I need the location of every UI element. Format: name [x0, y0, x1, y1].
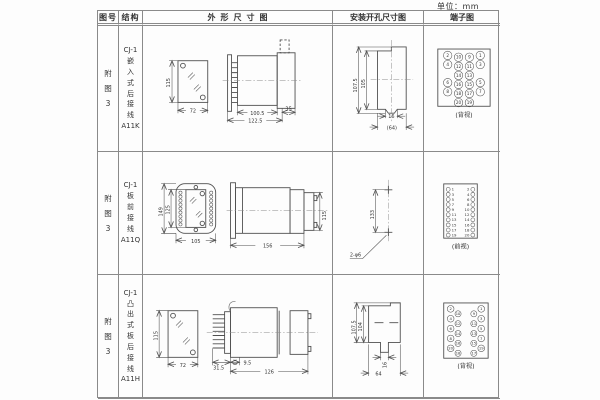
- cell-outline-a11q: 149 125 105: [143, 152, 333, 275]
- terminal-circle: [471, 228, 475, 232]
- dim-label: 72: [190, 108, 196, 114]
- dashed-handle: [280, 40, 289, 53]
- terminal-number: 14: [456, 73, 462, 78]
- header-install: 安装开孔尺寸图: [333, 11, 424, 26]
- terminal-fins: [232, 63, 238, 103]
- dim-label: 125: [166, 205, 172, 214]
- terminal-circle: [446, 203, 450, 207]
- terminal-number: 16: [456, 342, 461, 346]
- terminal-circle: [446, 233, 450, 237]
- terminal-number: 20: [465, 232, 470, 237]
- dim-label: 149: [159, 207, 165, 216]
- structure-a11h: CJ-1 凸 出 式 板 后 接 线 A11H: [119, 275, 143, 399]
- view-label: (背视): [455, 111, 472, 119]
- header-structure: 结构: [119, 11, 143, 26]
- fig-no-a11h: 附 图 3: [98, 275, 119, 399]
- terminal-number: 10: [456, 55, 462, 60]
- dim-label: 100.5: [250, 111, 264, 117]
- terminal-diagram-a11h: 2104126148162018193115137151917 (背视): [424, 275, 499, 398]
- cell-outline-a11k: 115 72 100.5: [143, 26, 333, 152]
- terminal-number: 9: [473, 312, 475, 316]
- terminal-number: 1: [480, 307, 483, 311]
- terminal-number: 4: [446, 62, 449, 67]
- dim-label: 16: [388, 114, 394, 120]
- terminal-number: 6: [449, 327, 452, 331]
- terminal-number: 19: [479, 347, 484, 351]
- terminal-number: 16: [456, 82, 462, 87]
- dim-label: 107.5: [351, 320, 357, 334]
- a11k-front-view: 115 72: [166, 61, 208, 115]
- header-fig-no: 图号: [98, 11, 119, 26]
- dim-label: 133: [370, 210, 376, 219]
- dim-label: 31.5: [213, 366, 224, 372]
- terminal-number: 14: [456, 332, 461, 336]
- terminal-circle: [446, 218, 450, 222]
- terminal-grid-a11k: 2109141211314136161558181772019: [443, 51, 484, 107]
- header-terminal: 端子图: [424, 11, 500, 26]
- outline-drawing-a11k: 115 72 100.5: [143, 26, 332, 151]
- a11h-front-view: 115 72: [154, 311, 198, 369]
- cell-install-a11q: 133 2-φ6: [333, 152, 424, 275]
- terminal-circle: [446, 192, 450, 196]
- dim-label: 16: [382, 362, 388, 368]
- terminal-number: 12: [456, 322, 461, 326]
- terminal-circle: [471, 218, 475, 222]
- terminal-number: 20: [456, 100, 462, 105]
- terminal-number: 8: [446, 89, 449, 94]
- view-label: (前视): [452, 243, 469, 251]
- glass-hatch: [190, 197, 202, 217]
- terminal-circle: [471, 233, 475, 237]
- glass-hatch: [188, 73, 201, 92]
- dim-label: 9.5: [243, 360, 251, 366]
- terminal-number: 9: [468, 55, 471, 60]
- terminal-number: 5: [479, 80, 482, 85]
- hole-cross: [384, 186, 392, 194]
- structure-a11q: CJ-1 板 前 接 线 A11Q: [119, 152, 143, 275]
- terminal-circle: [446, 213, 450, 217]
- terminal-circle: [471, 198, 475, 202]
- terminal-number: 18: [456, 352, 461, 356]
- dim-label: 105: [361, 79, 367, 88]
- a11q-holes: 133 2-φ6: [350, 180, 393, 259]
- structure-a11k: CJ-1 嵌 入 式 后 接 线 A11K: [119, 26, 143, 152]
- dim-label: 126: [265, 370, 274, 376]
- terminal-number: 20: [448, 347, 453, 351]
- terminal-number: 7: [479, 89, 482, 94]
- terminal-number: 15: [472, 342, 477, 346]
- dim-label: 64: [375, 372, 381, 378]
- terminal-circle: [446, 187, 450, 191]
- terminal-circle: [471, 223, 475, 227]
- a11h-side-view: 31.5 9.5 126: [207, 302, 318, 376]
- terminal-number: 18: [456, 91, 462, 96]
- terminal-number: 11: [472, 322, 477, 326]
- hole-spec-label: 2-φ6: [350, 253, 361, 259]
- cell-terminal-a11q: 1357911131517192468101214161820 (前视): [424, 152, 500, 275]
- terminal-diagram-a11k: 2109141211314136161558181772019 (背视): [424, 26, 499, 151]
- terminal-circle: [471, 187, 475, 191]
- terminal-circle: [446, 223, 450, 227]
- terminal-circle: [471, 192, 475, 196]
- outline-drawing-a11h: 115 72 3: [143, 275, 332, 398]
- terminal-number: 3: [480, 317, 483, 321]
- terminal-number: 17: [467, 91, 473, 96]
- cell-terminal-a11k: 2109141211314136161558181772019 (背视): [424, 26, 500, 152]
- header-outline: 外形尺寸图: [143, 11, 333, 26]
- terminal-circle: [471, 203, 475, 207]
- terminal-number: 15: [467, 82, 473, 87]
- terminal-screw-columns: [179, 191, 213, 226]
- seal-hook: [229, 302, 236, 311]
- dim-label: 104: [358, 322, 364, 331]
- terminal-grid-a11h: 2104126148162018193115137151917: [447, 306, 484, 357]
- terminal-number: 6: [446, 80, 449, 85]
- terminal-circle: [446, 198, 450, 202]
- terminal-number: 13: [472, 332, 477, 336]
- terminal-number: 1: [479, 53, 482, 58]
- terminal-number: 19: [467, 100, 473, 105]
- document-page: 单位：mm 图号 结构 外形尺寸图 安装开孔尺寸图 端子图 附 图 3 CJ-1…: [0, 0, 600, 400]
- install-drawing-a11q: 133 2-φ6: [333, 152, 423, 274]
- install-drawing-a11k: 107.5 105 16 (64): [333, 26, 423, 151]
- a11q-front-view: 149 125 105: [159, 184, 216, 245]
- terminal-circle: [471, 208, 475, 212]
- terminal-number: 19: [452, 232, 457, 237]
- dim-label: 156: [263, 244, 272, 250]
- cell-outline-a11h: 115 72 3: [143, 275, 333, 399]
- dim-label: 122.5: [248, 119, 262, 125]
- dim-label: 72: [180, 363, 186, 369]
- outline-drawing-a11q: 149 125 105: [143, 152, 332, 274]
- terminal-grid-a11q: 1357911131517192468101214161820: [446, 187, 475, 238]
- dim-label: 115: [154, 331, 160, 340]
- terminal-number: 11: [467, 64, 473, 69]
- terminal-number: 8: [449, 337, 452, 341]
- terminal-number: 4: [449, 317, 452, 321]
- a11h-cutout: 107.5 104 16 64: [351, 303, 408, 378]
- a11k-cutout: 107.5 105 16 (64): [353, 40, 414, 132]
- terminal-number: 3: [479, 62, 482, 67]
- terminal-number: 7: [480, 337, 483, 341]
- spec-table: 图号 结构 外形尺寸图 安装开孔尺寸图 端子图 附 图 3 CJ-1 嵌 入 式…: [97, 10, 499, 398]
- terminal-number: 2: [449, 307, 452, 311]
- dim-label: 35: [285, 106, 291, 112]
- cell-install-a11k: 107.5 105 16 (64): [333, 26, 424, 152]
- fig-no-a11q: 附 图 3: [98, 152, 119, 275]
- glass-hatch: [176, 321, 190, 345]
- dim-label: (64): [387, 126, 397, 132]
- terminal-diagram-a11q: 1357911131517192468101214161820 (前视): [424, 152, 499, 274]
- terminal-box: [444, 184, 478, 238]
- terminal-number: 12: [456, 64, 462, 69]
- hole-cross: [384, 228, 392, 236]
- cell-install-a11h: 107.5 104 16 64: [333, 275, 424, 399]
- fig-no-a11k: 附 图 3: [98, 26, 119, 152]
- view-label: (背视): [457, 362, 474, 370]
- terminal-number: 17: [472, 352, 477, 356]
- terminal-number: 10: [456, 312, 461, 316]
- terminal-circle: [446, 208, 450, 212]
- terminal-circle: [471, 213, 475, 217]
- terminal-circle: [446, 228, 450, 232]
- dim-label: 105: [191, 239, 200, 245]
- a11q-side-view: 156 115: [227, 183, 328, 250]
- dim-label: 115: [166, 78, 172, 87]
- terminal-number: 2: [446, 53, 449, 58]
- cell-terminal-a11h: 2104126148162018193115137151917 (背视): [424, 275, 500, 399]
- dim-label: 115: [322, 211, 328, 220]
- dim-label: 107.5: [353, 78, 359, 92]
- terminal-number: 5: [480, 327, 483, 331]
- install-drawing-a11h: 107.5 104 16 64: [333, 275, 423, 398]
- a11k-side-view: 100.5 122.5 35: [223, 40, 302, 125]
- terminal-fins: [213, 315, 225, 348]
- terminal-number: 13: [467, 73, 473, 78]
